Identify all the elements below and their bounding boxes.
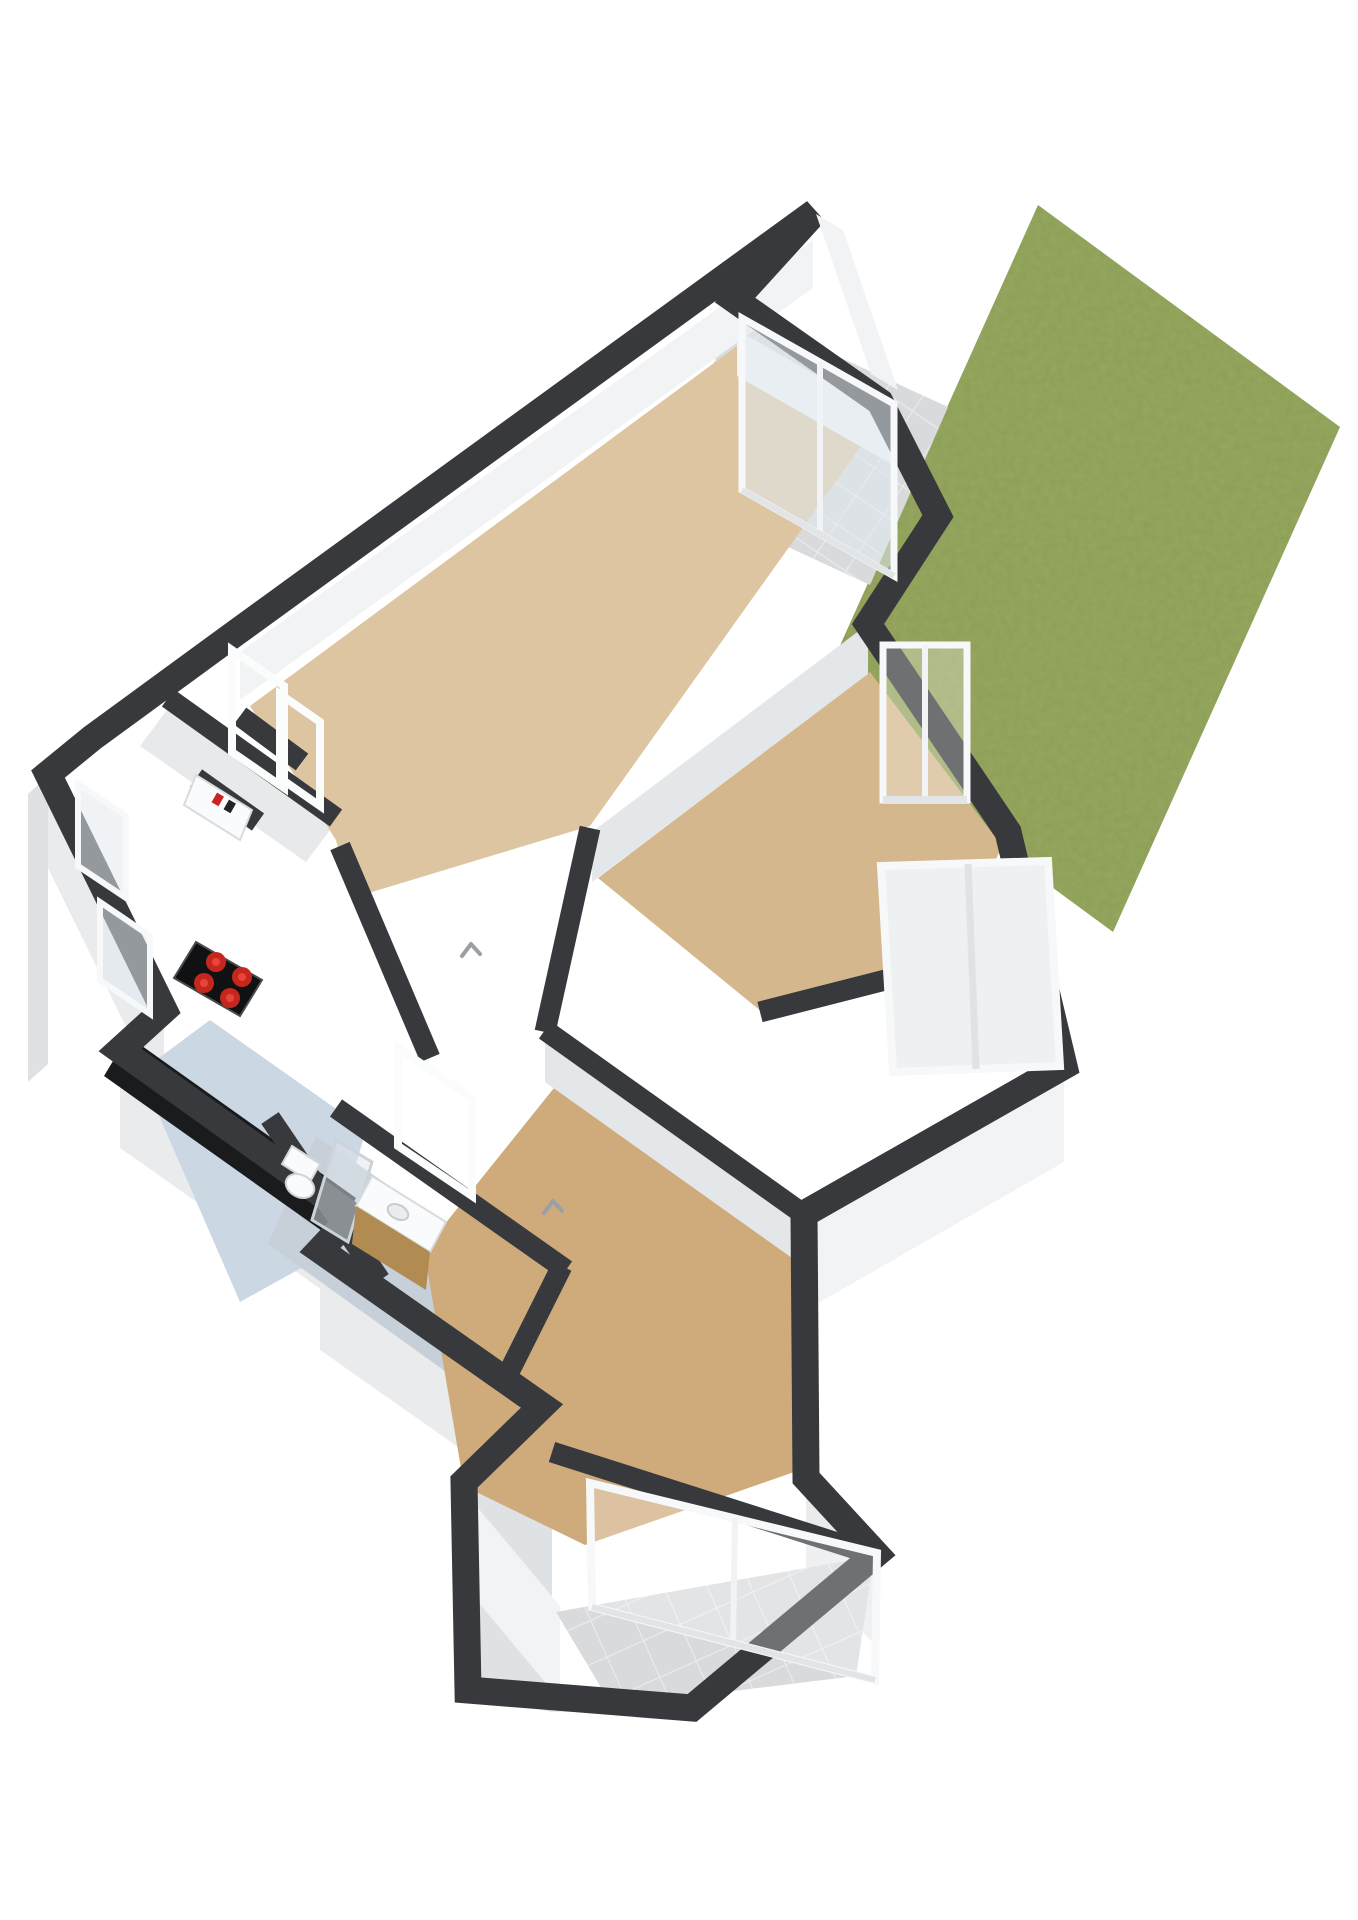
exterior-faces xyxy=(28,776,1064,1712)
bathroom-southwest-face xyxy=(320,1252,542,1506)
garden xyxy=(790,185,1358,955)
bedroom-big-window-glass xyxy=(881,861,1060,1072)
balcony-tiles xyxy=(556,1556,874,1706)
door-wall-interior-face xyxy=(737,330,898,468)
meter-cabinet-box xyxy=(184,775,252,840)
floors xyxy=(140,346,1002,1545)
vanity-countertop xyxy=(356,1176,446,1252)
sliding-door-sill xyxy=(742,490,894,576)
door-handles xyxy=(462,944,562,1213)
interior-wall-paths xyxy=(168,698,948,1556)
apex-wall-end-face xyxy=(816,214,898,390)
sliding-door-glass xyxy=(742,318,894,576)
window-left-2 xyxy=(100,902,150,1014)
building xyxy=(28,212,1064,1712)
garden-window-glass xyxy=(883,645,967,800)
bedroom-middle-floor xyxy=(598,672,1002,1012)
windows xyxy=(78,318,1060,1680)
toilet-tank xyxy=(282,1146,320,1182)
living-room-floor xyxy=(250,346,874,898)
hall-door-frame-2 xyxy=(280,694,320,806)
burner-icon xyxy=(232,967,252,987)
interior-faces xyxy=(240,240,898,1700)
floorplan-3d-render xyxy=(0,0,1358,1920)
burner-center-icon xyxy=(200,979,208,987)
hall-west-side-face xyxy=(28,776,48,1082)
bedroom-bottom-north-wall xyxy=(545,1030,806,1216)
meter-red-module-icon xyxy=(212,793,224,807)
left-windows xyxy=(78,784,150,1014)
kitchen-bath-wall xyxy=(270,1118,380,1280)
hall-west-face xyxy=(48,776,164,1104)
burner-center-icon xyxy=(226,994,234,1002)
hall-closet-wall xyxy=(240,716,302,762)
bedroom-middle-west-wall xyxy=(545,828,590,1032)
vanity xyxy=(352,1176,446,1290)
balcony-east-face xyxy=(806,1480,876,1646)
bedroom-bottom-floor xyxy=(424,1078,804,1545)
door-frames xyxy=(232,650,472,1196)
hall-block-wall xyxy=(168,698,336,818)
hall-door-frame-1 xyxy=(232,650,284,788)
bedroom-big-window xyxy=(881,861,1060,1072)
burner-center-icon xyxy=(238,973,246,981)
bathroom-floor xyxy=(268,1136,540,1392)
door-handle-icon xyxy=(462,944,480,956)
cooktop xyxy=(174,942,262,1016)
bedroom-big-window-mullion xyxy=(968,864,976,1069)
bathroom-fixtures xyxy=(282,1140,446,1290)
kitchen-counter xyxy=(104,1036,356,1238)
outer-wall-path xyxy=(48,212,1064,1708)
toilet-bowl xyxy=(282,1169,319,1203)
balcony-west-face xyxy=(464,1484,552,1712)
vanity-wood-front xyxy=(352,1206,430,1290)
balcony-bottom-face xyxy=(552,1694,692,1712)
balcony-window-sill xyxy=(592,1607,875,1680)
bathroom-door-frame xyxy=(398,1048,472,1196)
bedroom-middle-south-wall xyxy=(760,964,948,1012)
balcony-window xyxy=(590,1483,877,1680)
hallway-floor xyxy=(140,706,336,862)
kitchen-floor xyxy=(140,1020,366,1302)
cooktop-burners xyxy=(194,952,252,1008)
balcony-window-glass xyxy=(590,1483,877,1680)
balcony-interior-face xyxy=(468,1496,560,1700)
balcony-window-mullion xyxy=(733,1518,735,1645)
burner-icon xyxy=(194,973,214,993)
kitchen-southwest-face xyxy=(120,1046,356,1314)
bathroom-east-wall xyxy=(500,1266,562,1390)
meter-cabinet xyxy=(184,775,252,840)
floorplan-stage xyxy=(0,0,1358,1920)
kitchen-east-wall xyxy=(340,846,430,1058)
garden-grass xyxy=(811,205,1340,932)
balcony-window-wall xyxy=(552,1452,878,1556)
kitchen-counter-group xyxy=(104,942,356,1238)
bathroom-north-wall xyxy=(336,1108,566,1270)
burner-icon xyxy=(220,988,240,1008)
patio-tiles xyxy=(659,310,948,585)
living-northwest-interior-face xyxy=(240,240,813,700)
shower-glass-screen xyxy=(312,1140,372,1242)
walls xyxy=(48,212,1064,1708)
garden-window xyxy=(883,645,967,800)
bedroom-bottom-interior-face xyxy=(545,1030,806,1268)
door-handle-icon xyxy=(544,1201,562,1213)
bedroom-southeast-face xyxy=(806,1070,1064,1310)
bedroom-middle-interior-face xyxy=(592,624,868,882)
shower xyxy=(312,1140,372,1242)
window-left-1 xyxy=(78,784,126,898)
sliding-glass-door xyxy=(742,318,894,576)
meter-dark-module-icon xyxy=(224,800,236,814)
meter-closet-wall xyxy=(196,778,258,822)
sink-basin xyxy=(385,1201,411,1224)
burner-icon xyxy=(206,952,226,972)
toilet xyxy=(282,1146,320,1203)
grass-texture xyxy=(790,185,1358,955)
burner-center-icon xyxy=(212,958,220,966)
